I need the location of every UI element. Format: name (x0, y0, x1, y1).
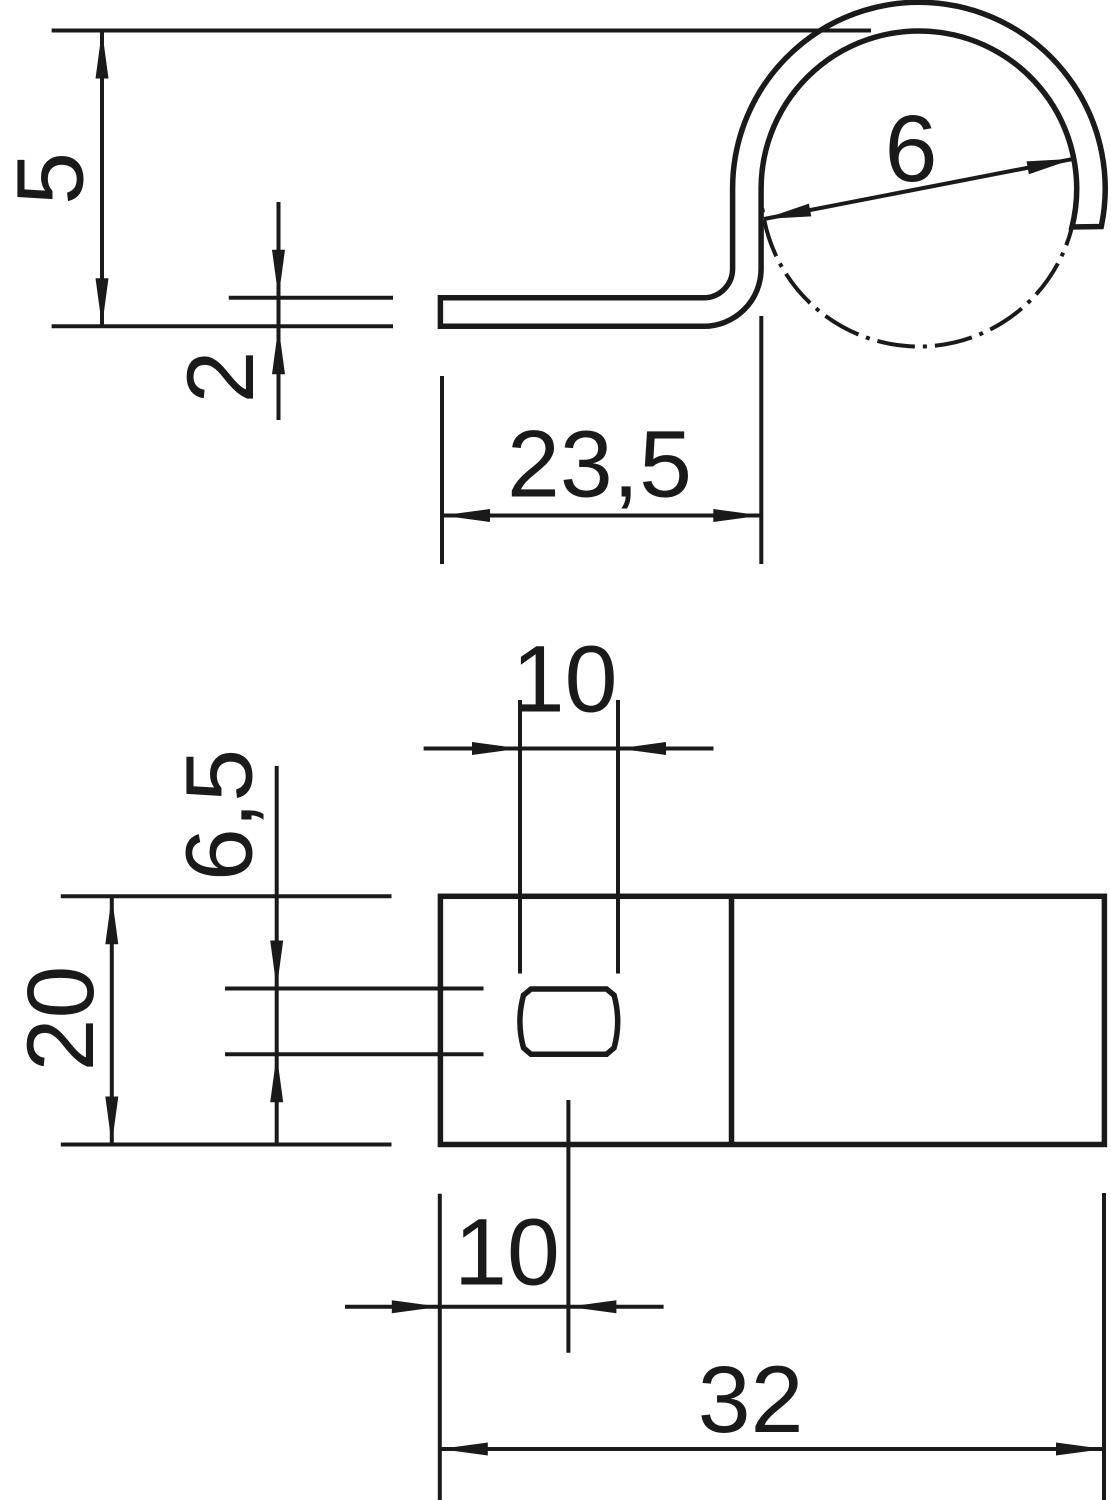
svg-text:2: 2 (168, 351, 274, 404)
svg-text:6: 6 (885, 96, 938, 202)
svg-text:10: 10 (454, 1200, 560, 1306)
svg-text:20: 20 (8, 966, 114, 1072)
svg-text:10: 10 (512, 627, 618, 733)
svg-text:32: 32 (698, 1347, 804, 1453)
svg-text:5: 5 (0, 152, 104, 205)
svg-text:6,5: 6,5 (167, 749, 273, 881)
svg-text:23,5: 23,5 (507, 412, 692, 518)
